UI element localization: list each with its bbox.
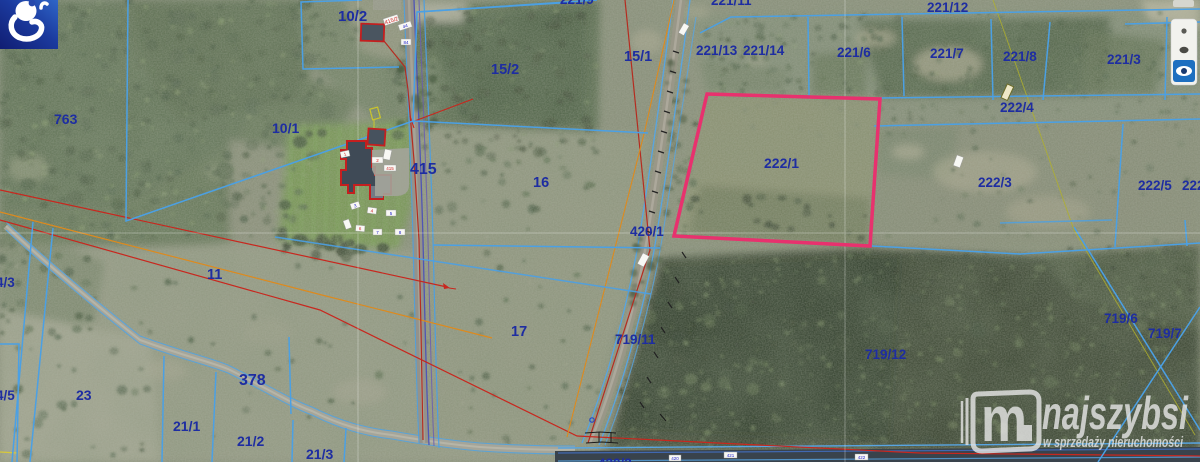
svg-text:16: 16 bbox=[533, 175, 549, 191]
svg-text:421: 421 bbox=[727, 453, 735, 458]
svg-text:15/2: 15/2 bbox=[491, 62, 519, 78]
svg-text:719/11: 719/11 bbox=[615, 332, 656, 347]
svg-text:719/6: 719/6 bbox=[1104, 311, 1138, 326]
svg-text:221/14: 221/14 bbox=[743, 43, 785, 58]
svg-text:221/6: 221/6 bbox=[837, 45, 871, 60]
svg-text:222/2: 222/2 bbox=[1182, 178, 1200, 193]
svg-text:221/3: 221/3 bbox=[1107, 52, 1141, 67]
svg-text:221/9: 221/9 bbox=[560, 0, 594, 7]
svg-text:4/5: 4/5 bbox=[0, 388, 15, 403]
svg-text:10/2: 10/2 bbox=[338, 8, 367, 25]
svg-text:221/12: 221/12 bbox=[927, 0, 968, 15]
svg-text:222/1: 222/1 bbox=[764, 155, 799, 171]
svg-text:719/7: 719/7 bbox=[1148, 326, 1182, 341]
svg-text:420/2: 420/2 bbox=[598, 456, 632, 462]
svg-text:10/1: 10/1 bbox=[272, 120, 299, 136]
svg-text:415: 415 bbox=[410, 161, 437, 178]
svg-text:21/3: 21/3 bbox=[306, 446, 333, 462]
svg-text:222/5: 222/5 bbox=[1138, 178, 1172, 193]
svg-text:11: 11 bbox=[207, 267, 222, 283]
svg-text:422: 422 bbox=[858, 455, 866, 460]
svg-text:21/1: 21/1 bbox=[173, 418, 200, 434]
svg-text:378: 378 bbox=[239, 372, 266, 389]
svg-text:420: 420 bbox=[671, 456, 679, 461]
svg-text:221/13: 221/13 bbox=[696, 43, 738, 58]
svg-text:17: 17 bbox=[511, 324, 527, 340]
svg-text:najszybsi: najszybsi bbox=[1042, 387, 1189, 439]
svg-text:w sprzedaży nieruchomości: w sprzedaży nieruchomości bbox=[1043, 435, 1184, 451]
svg-text:221/7: 221/7 bbox=[930, 46, 964, 61]
svg-text:415: 415 bbox=[386, 166, 394, 171]
svg-text:m: m bbox=[981, 383, 1027, 455]
svg-text:23: 23 bbox=[76, 387, 92, 403]
svg-text:21/2: 21/2 bbox=[237, 433, 264, 449]
svg-text:221/11: 221/11 bbox=[711, 0, 752, 8]
svg-text:4/3: 4/3 bbox=[0, 275, 15, 290]
svg-text:222/3: 222/3 bbox=[978, 175, 1012, 190]
svg-text:221/8: 221/8 bbox=[1003, 49, 1037, 64]
svg-text:763: 763 bbox=[54, 111, 78, 127]
svg-text:84: 84 bbox=[403, 40, 409, 45]
svg-text:719/12: 719/12 bbox=[865, 347, 906, 362]
svg-text:15/1: 15/1 bbox=[624, 49, 652, 65]
svg-text:222/4: 222/4 bbox=[1000, 100, 1034, 115]
svg-text:420/1: 420/1 bbox=[630, 224, 664, 239]
